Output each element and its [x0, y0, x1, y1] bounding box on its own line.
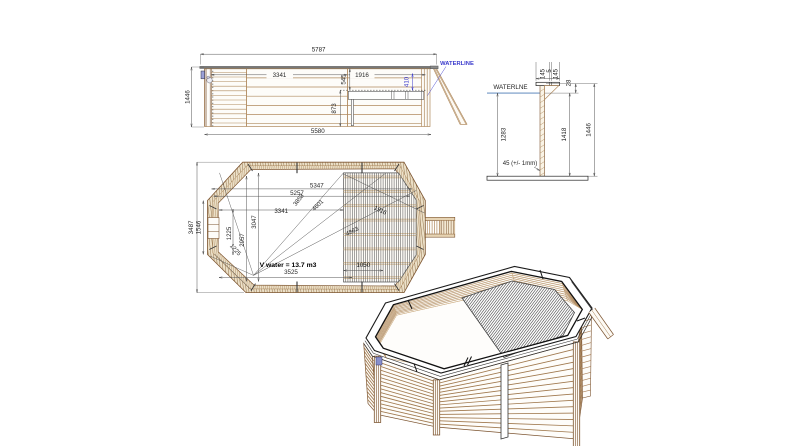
svg-text:145: 145 [554, 68, 560, 79]
svg-text:3047: 3047 [252, 215, 258, 229]
svg-text:5257: 5257 [290, 190, 304, 197]
svg-text:145: 145 [541, 68, 547, 79]
svg-text:WATERLNE: WATERLNE [493, 84, 527, 91]
svg-text:5347: 5347 [310, 182, 324, 189]
svg-text:WATERLINE: WATERLINE [440, 61, 474, 67]
svg-text:3525: 3525 [284, 269, 298, 276]
svg-text:2957: 2957 [240, 233, 246, 247]
svg-text:28: 28 [567, 79, 573, 86]
svg-text:1916: 1916 [355, 72, 369, 79]
svg-text:V water = 13.7 m3: V water = 13.7 m3 [260, 262, 317, 269]
svg-text:1446: 1446 [185, 90, 192, 104]
svg-text:3341: 3341 [273, 72, 287, 79]
svg-text:1446: 1446 [585, 122, 592, 136]
svg-text:873: 873 [331, 103, 338, 114]
svg-text:3487: 3487 [188, 220, 195, 234]
svg-text:1050: 1050 [356, 262, 370, 269]
svg-text:5787: 5787 [312, 46, 326, 53]
svg-text:45 (+/- 1mm): 45 (+/- 1mm) [503, 161, 538, 167]
svg-text:1225: 1225 [227, 226, 233, 240]
svg-text:545: 545 [341, 74, 348, 85]
svg-text:5580: 5580 [311, 128, 325, 135]
svg-text:410: 410 [404, 76, 411, 87]
svg-text:1546: 1546 [196, 220, 203, 234]
svg-text:3341: 3341 [274, 208, 288, 215]
svg-text:1418: 1418 [561, 127, 568, 141]
svg-text:1283: 1283 [501, 127, 508, 141]
